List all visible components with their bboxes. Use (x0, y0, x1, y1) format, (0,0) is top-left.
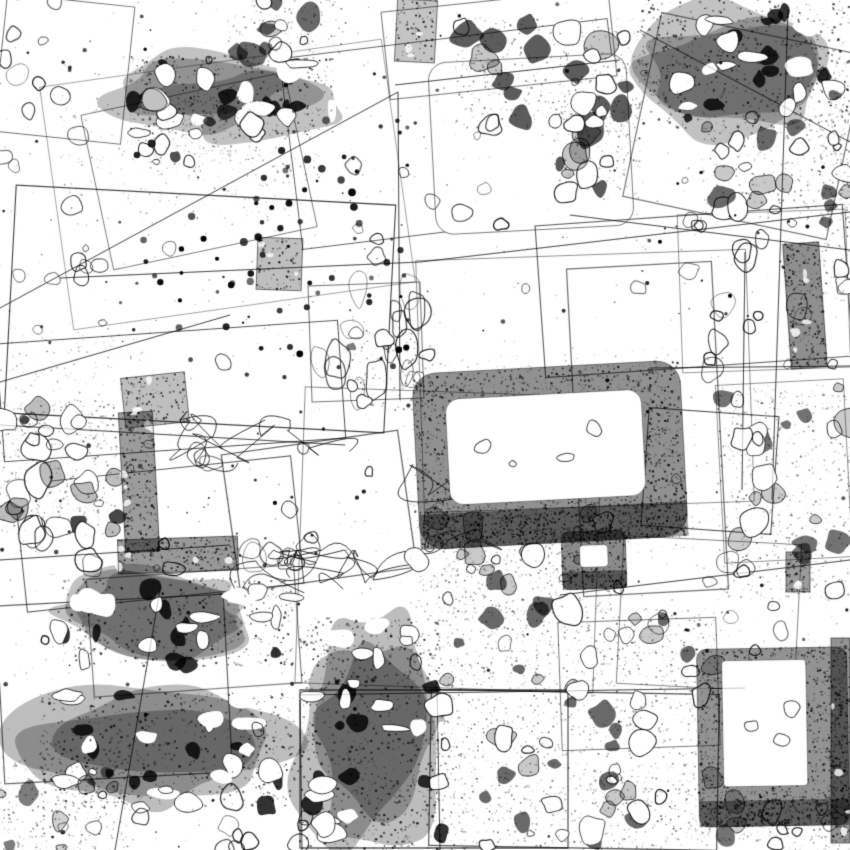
abstract-ink-collage-canvas (0, 0, 850, 850)
abstract-ink-collage-artwork (0, 0, 850, 850)
